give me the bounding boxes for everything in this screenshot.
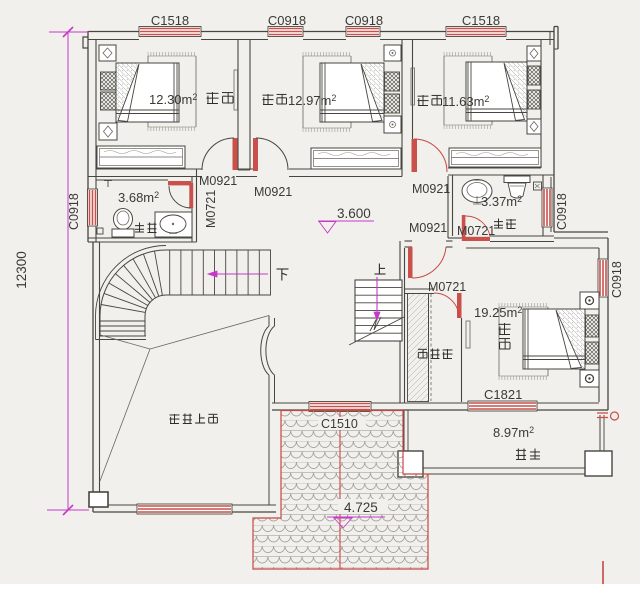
svg-text:3.68m2: 3.68m2 bbox=[118, 190, 159, 205]
svg-text:M0721: M0721 bbox=[457, 224, 495, 238]
svg-text:3.600: 3.600 bbox=[337, 206, 371, 221]
svg-text:C0918: C0918 bbox=[67, 193, 81, 230]
svg-text:M0721: M0721 bbox=[428, 280, 466, 294]
svg-text:C0918: C0918 bbox=[610, 261, 624, 298]
svg-text:12.97m2: 12.97m2 bbox=[288, 93, 336, 108]
svg-text:3.37m2: 3.37m2 bbox=[481, 194, 522, 209]
svg-text:C0918: C0918 bbox=[345, 13, 383, 28]
svg-text:8.97m2: 8.97m2 bbox=[493, 425, 534, 440]
svg-text:19.25m2: 19.25m2 bbox=[474, 305, 522, 320]
svg-text:C1510: C1510 bbox=[321, 417, 358, 431]
svg-text:M0721: M0721 bbox=[204, 190, 218, 228]
svg-text:4.725: 4.725 bbox=[344, 500, 378, 515]
svg-text:C0918: C0918 bbox=[268, 13, 306, 28]
svg-text:M0921: M0921 bbox=[199, 174, 237, 188]
svg-text:C1518: C1518 bbox=[151, 13, 189, 28]
svg-text:C1518: C1518 bbox=[462, 13, 500, 28]
svg-text:C0918: C0918 bbox=[555, 193, 569, 230]
svg-text:C1821: C1821 bbox=[484, 387, 522, 402]
svg-text:11.63m2: 11.63m2 bbox=[442, 94, 489, 109]
svg-text:M0921: M0921 bbox=[412, 182, 450, 196]
svg-text:M0921: M0921 bbox=[254, 185, 292, 199]
svg-text:M0921: M0921 bbox=[409, 221, 447, 235]
svg-text:12.30m2: 12.30m2 bbox=[149, 92, 197, 107]
svg-text:12300: 12300 bbox=[14, 251, 29, 289]
